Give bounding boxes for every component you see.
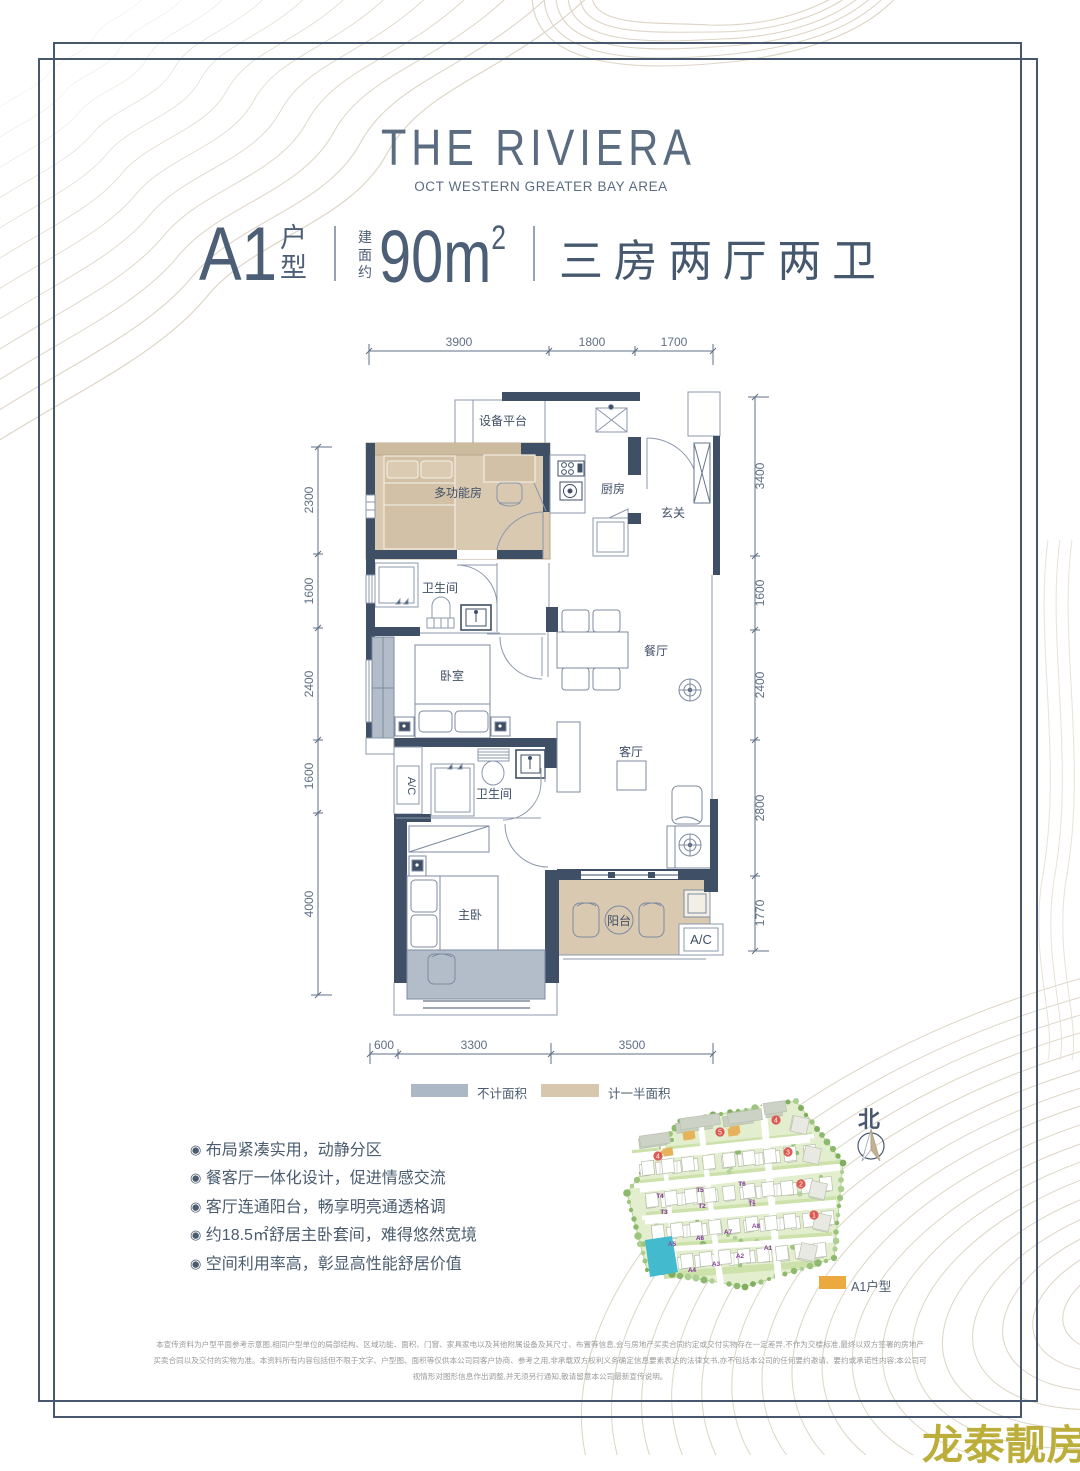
svg-text:A4: A4 — [688, 1267, 697, 1274]
svg-text:1600: 1600 — [753, 579, 767, 606]
svg-text:2300: 2300 — [302, 486, 316, 513]
svg-text:5: 5 — [718, 1130, 722, 1137]
svg-text:1600: 1600 — [302, 577, 316, 604]
svg-text:2800: 2800 — [753, 794, 767, 821]
svg-text:600: 600 — [374, 1038, 394, 1052]
svg-text:A/C: A/C — [405, 777, 417, 795]
svg-text:厨房: 厨房 — [601, 481, 625, 496]
svg-text:玄关: 玄关 — [661, 505, 685, 520]
svg-text:2: 2 — [799, 1182, 803, 1189]
svg-text:3: 3 — [786, 1150, 790, 1157]
svg-text:3500: 3500 — [619, 1038, 646, 1052]
svg-text:A8: A8 — [752, 1223, 761, 1230]
svg-text:卧室: 卧室 — [440, 668, 464, 683]
svg-text:阳台: 阳台 — [607, 913, 631, 928]
svg-text:T5: T5 — [696, 1187, 704, 1194]
svg-text:3900: 3900 — [446, 335, 473, 349]
svg-text:2400: 2400 — [753, 671, 767, 698]
svg-text:A7: A7 — [724, 1229, 733, 1236]
svg-text:A6: A6 — [696, 1235, 705, 1242]
svg-text:客厅: 客厅 — [619, 744, 643, 759]
svg-text:1700: 1700 — [661, 335, 688, 349]
svg-text:T6: T6 — [738, 1181, 746, 1188]
svg-text:多功能房: 多功能房 — [434, 485, 482, 500]
svg-text:2400: 2400 — [302, 670, 316, 697]
svg-text:餐厅: 餐厅 — [644, 643, 668, 658]
svg-text:主卧: 主卧 — [458, 908, 482, 922]
svg-text:T1: T1 — [748, 1199, 756, 1206]
svg-text:A5: A5 — [668, 1241, 677, 1248]
svg-text:卫生间: 卫生间 — [476, 787, 512, 801]
svg-text:3400: 3400 — [753, 462, 767, 489]
svg-text:A/C: A/C — [690, 932, 712, 947]
svg-text:设备平台: 设备平台 — [479, 413, 527, 428]
svg-text:T2: T2 — [698, 1203, 706, 1210]
svg-text:T3: T3 — [660, 1209, 668, 1216]
svg-text:4000: 4000 — [302, 890, 316, 917]
svg-text:A2: A2 — [736, 1253, 745, 1260]
svg-text:卫生间: 卫生间 — [422, 581, 458, 595]
svg-text:4: 4 — [774, 1118, 778, 1125]
svg-text:4: 4 — [656, 1154, 660, 1161]
svg-text:T4: T4 — [656, 1193, 664, 1200]
svg-text:3300: 3300 — [461, 1038, 488, 1052]
svg-text:A1: A1 — [764, 1245, 773, 1252]
svg-text:1770: 1770 — [753, 899, 767, 926]
svg-text:1600: 1600 — [302, 762, 316, 789]
svg-text:A3: A3 — [712, 1261, 721, 1268]
svg-text:1: 1 — [812, 1213, 816, 1220]
svg-text:1800: 1800 — [579, 335, 606, 349]
